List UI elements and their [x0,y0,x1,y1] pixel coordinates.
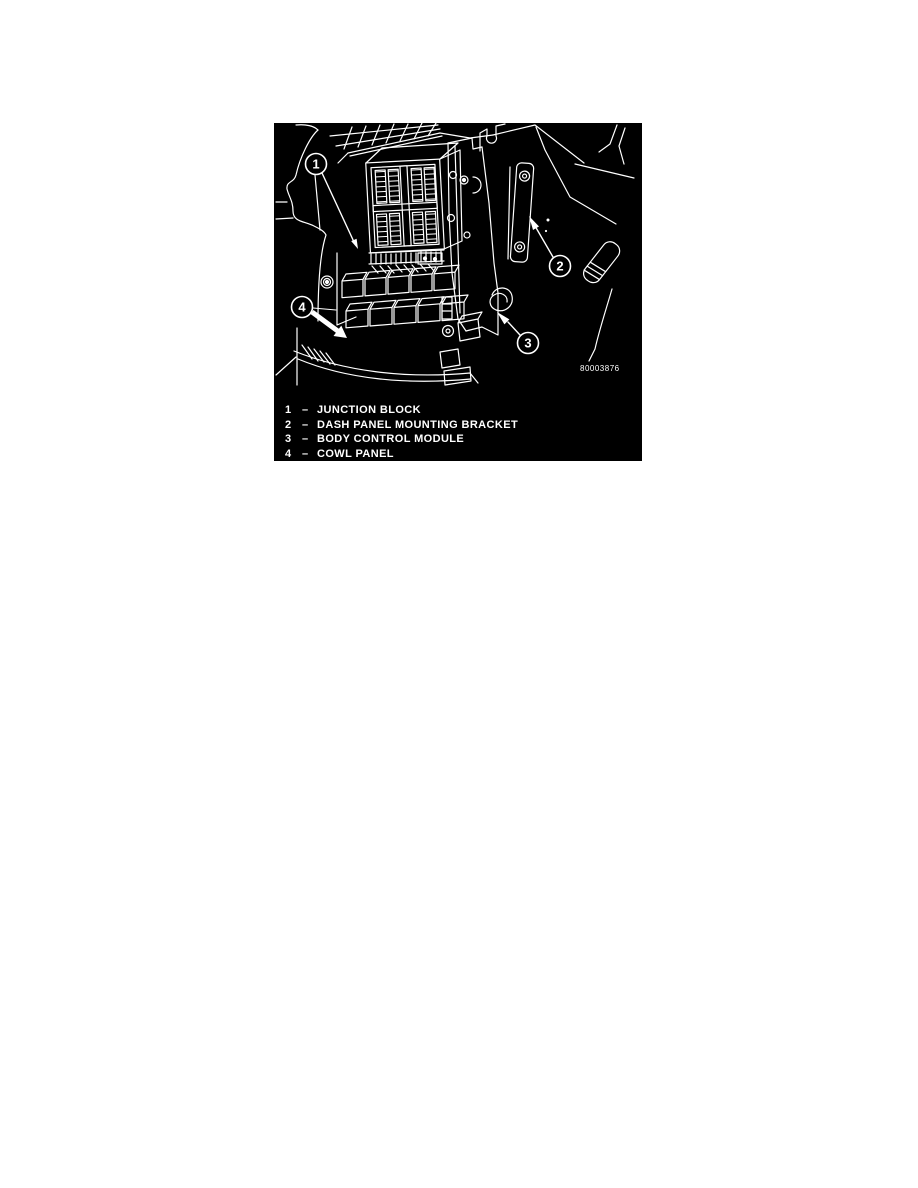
mounting-bracket [508,163,550,263]
legend-item-1: 1 – JUNCTION BLOCK [285,403,518,418]
legend-item-2: 2 – DASH PANEL MOUNTING BRACKET [285,418,518,433]
callout-4-number: 4 [298,300,306,315]
callout-2 [529,216,571,277]
legend-dash: – [302,418,317,433]
callout-2-number: 2 [556,259,563,274]
arrowhead-3 [497,312,509,324]
callout-1-number: 1 [312,157,319,172]
legend-number: 2 [285,418,302,433]
legend-dash: – [302,432,317,447]
arrowhead-1 [351,239,358,249]
manual-page: 1 2 3 4 80003876 1 – JUNCTION BLOCK 2 – … [0,0,918,1188]
legend-label: DASH PANEL MOUNTING BRACKET [317,418,518,433]
legend-label: JUNCTION BLOCK [317,403,421,418]
technical-illustration: 1 2 3 4 80003876 [274,123,642,395]
harness-boot [580,239,623,361]
junction-block [366,143,462,273]
legend-label: COWL PANEL [317,447,394,462]
legend-number: 4 [285,447,302,462]
figure-legend: 1 – JUNCTION BLOCK 2 – DASH PANEL MOUNTI… [285,403,518,461]
body-control-module [440,138,512,385]
figure-panel: 1 2 3 4 80003876 1 – JUNCTION BLOCK 2 – … [274,123,642,461]
cowl-grille-grid [330,123,493,163]
figure-number: 80003876 [580,364,620,373]
legend-dash: – [302,447,317,462]
wire-bundle [490,288,512,311]
callout-3-number: 3 [524,336,531,351]
body-panel-lines [480,124,634,224]
callout-3 [497,312,539,354]
arrowhead-2 [529,216,539,230]
legend-number: 3 [285,432,302,447]
legend-item-3: 3 – BODY CONTROL MODULE [285,432,518,447]
arrowhead-4 [311,310,348,338]
legend-dash: – [302,403,317,418]
legend-number: 1 [285,403,302,418]
legend-label: BODY CONTROL MODULE [317,432,464,447]
legend-item-4: 4 – COWL PANEL [285,447,518,462]
